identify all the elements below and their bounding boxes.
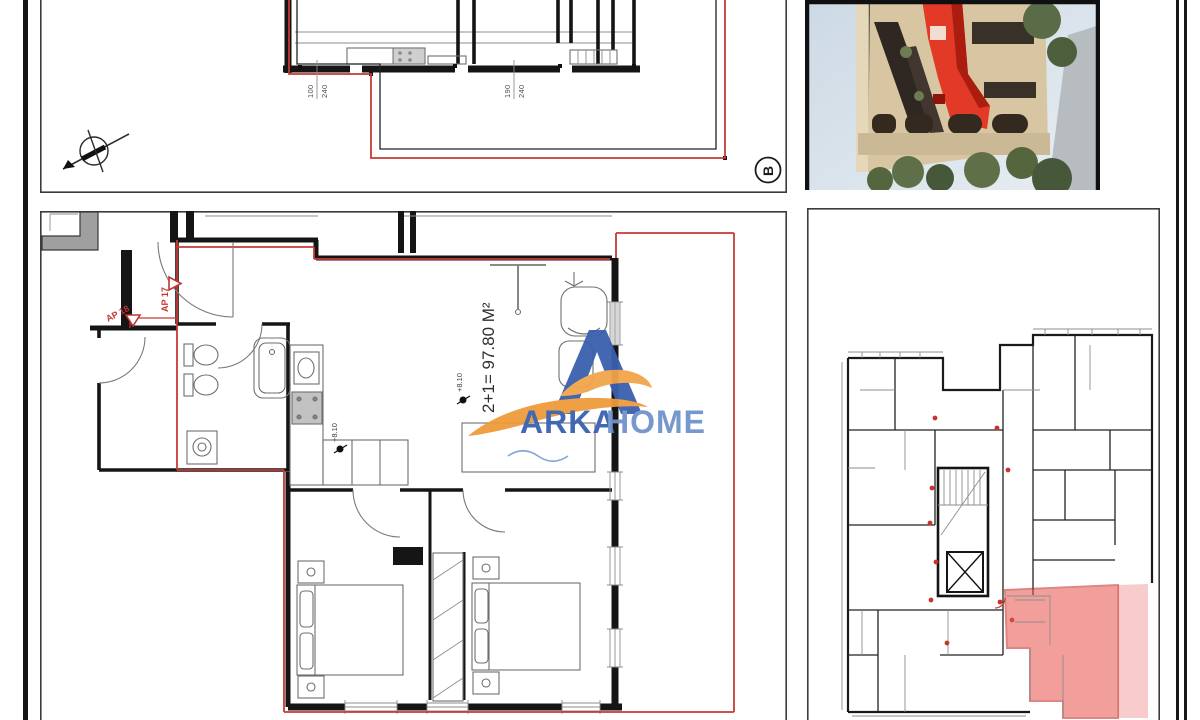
section-letter: B	[760, 166, 776, 176]
apartment-area-label: 2+1= 97.80 M²	[479, 302, 498, 413]
sheet-right-rule-outer	[1176, 0, 1179, 720]
circulation-core	[938, 468, 988, 596]
elevator-icon	[947, 552, 983, 592]
section-marker-b: B	[756, 158, 781, 183]
brand-name-right: HOME	[606, 404, 706, 440]
dim2-width: 190	[503, 85, 512, 98]
bedroom-furniture	[297, 553, 580, 701]
floorplan-sheet: 100 240 190 240 B	[0, 0, 1200, 720]
sheet-left-rule	[23, 0, 28, 720]
sheet-right-rule-inner	[1184, 0, 1187, 720]
main-floor-plan-panel: AP 17 AP 18 +8.10 +8.10 2+1= 97.80 M² AR…	[40, 211, 787, 720]
dim2-height: 240	[517, 85, 526, 98]
elevation-markers: +8.10 +8.10	[330, 373, 470, 453]
red-apartment-boundary	[130, 233, 734, 712]
door-swings	[99, 242, 505, 537]
stair-icon	[938, 470, 988, 535]
upper-plan-red-boundary	[289, 0, 725, 158]
bathroom-fixtures	[184, 338, 290, 464]
panel-border	[41, 212, 786, 720]
arka-home-watermark: ARKA HOME	[468, 330, 706, 461]
logo-wave-icon	[508, 451, 568, 462]
apartment-entry-markers: AP 17 AP 18	[104, 277, 181, 326]
key-plan-panel	[807, 208, 1160, 720]
panel-border	[41, 0, 786, 192]
key-plan-door-dots	[928, 416, 1015, 646]
north-arrow-icon	[63, 130, 129, 172]
building-render-panel	[805, 0, 1100, 190]
dim1-width: 100	[306, 85, 315, 98]
brand-name-left: ARKA	[520, 404, 616, 440]
render-building	[856, 0, 1050, 172]
elevation-label-2: +8.10	[330, 423, 339, 442]
ap17-door-marker-icon	[169, 277, 181, 290]
highlighted-unit-overlay	[995, 584, 1148, 718]
dim1-height: 240	[320, 85, 329, 98]
upper-plan-walls	[283, 0, 727, 160]
elevation-label-1: +8.10	[455, 373, 464, 392]
upper-floor-plan-panel: 100 240 190 240 B	[40, 0, 787, 193]
